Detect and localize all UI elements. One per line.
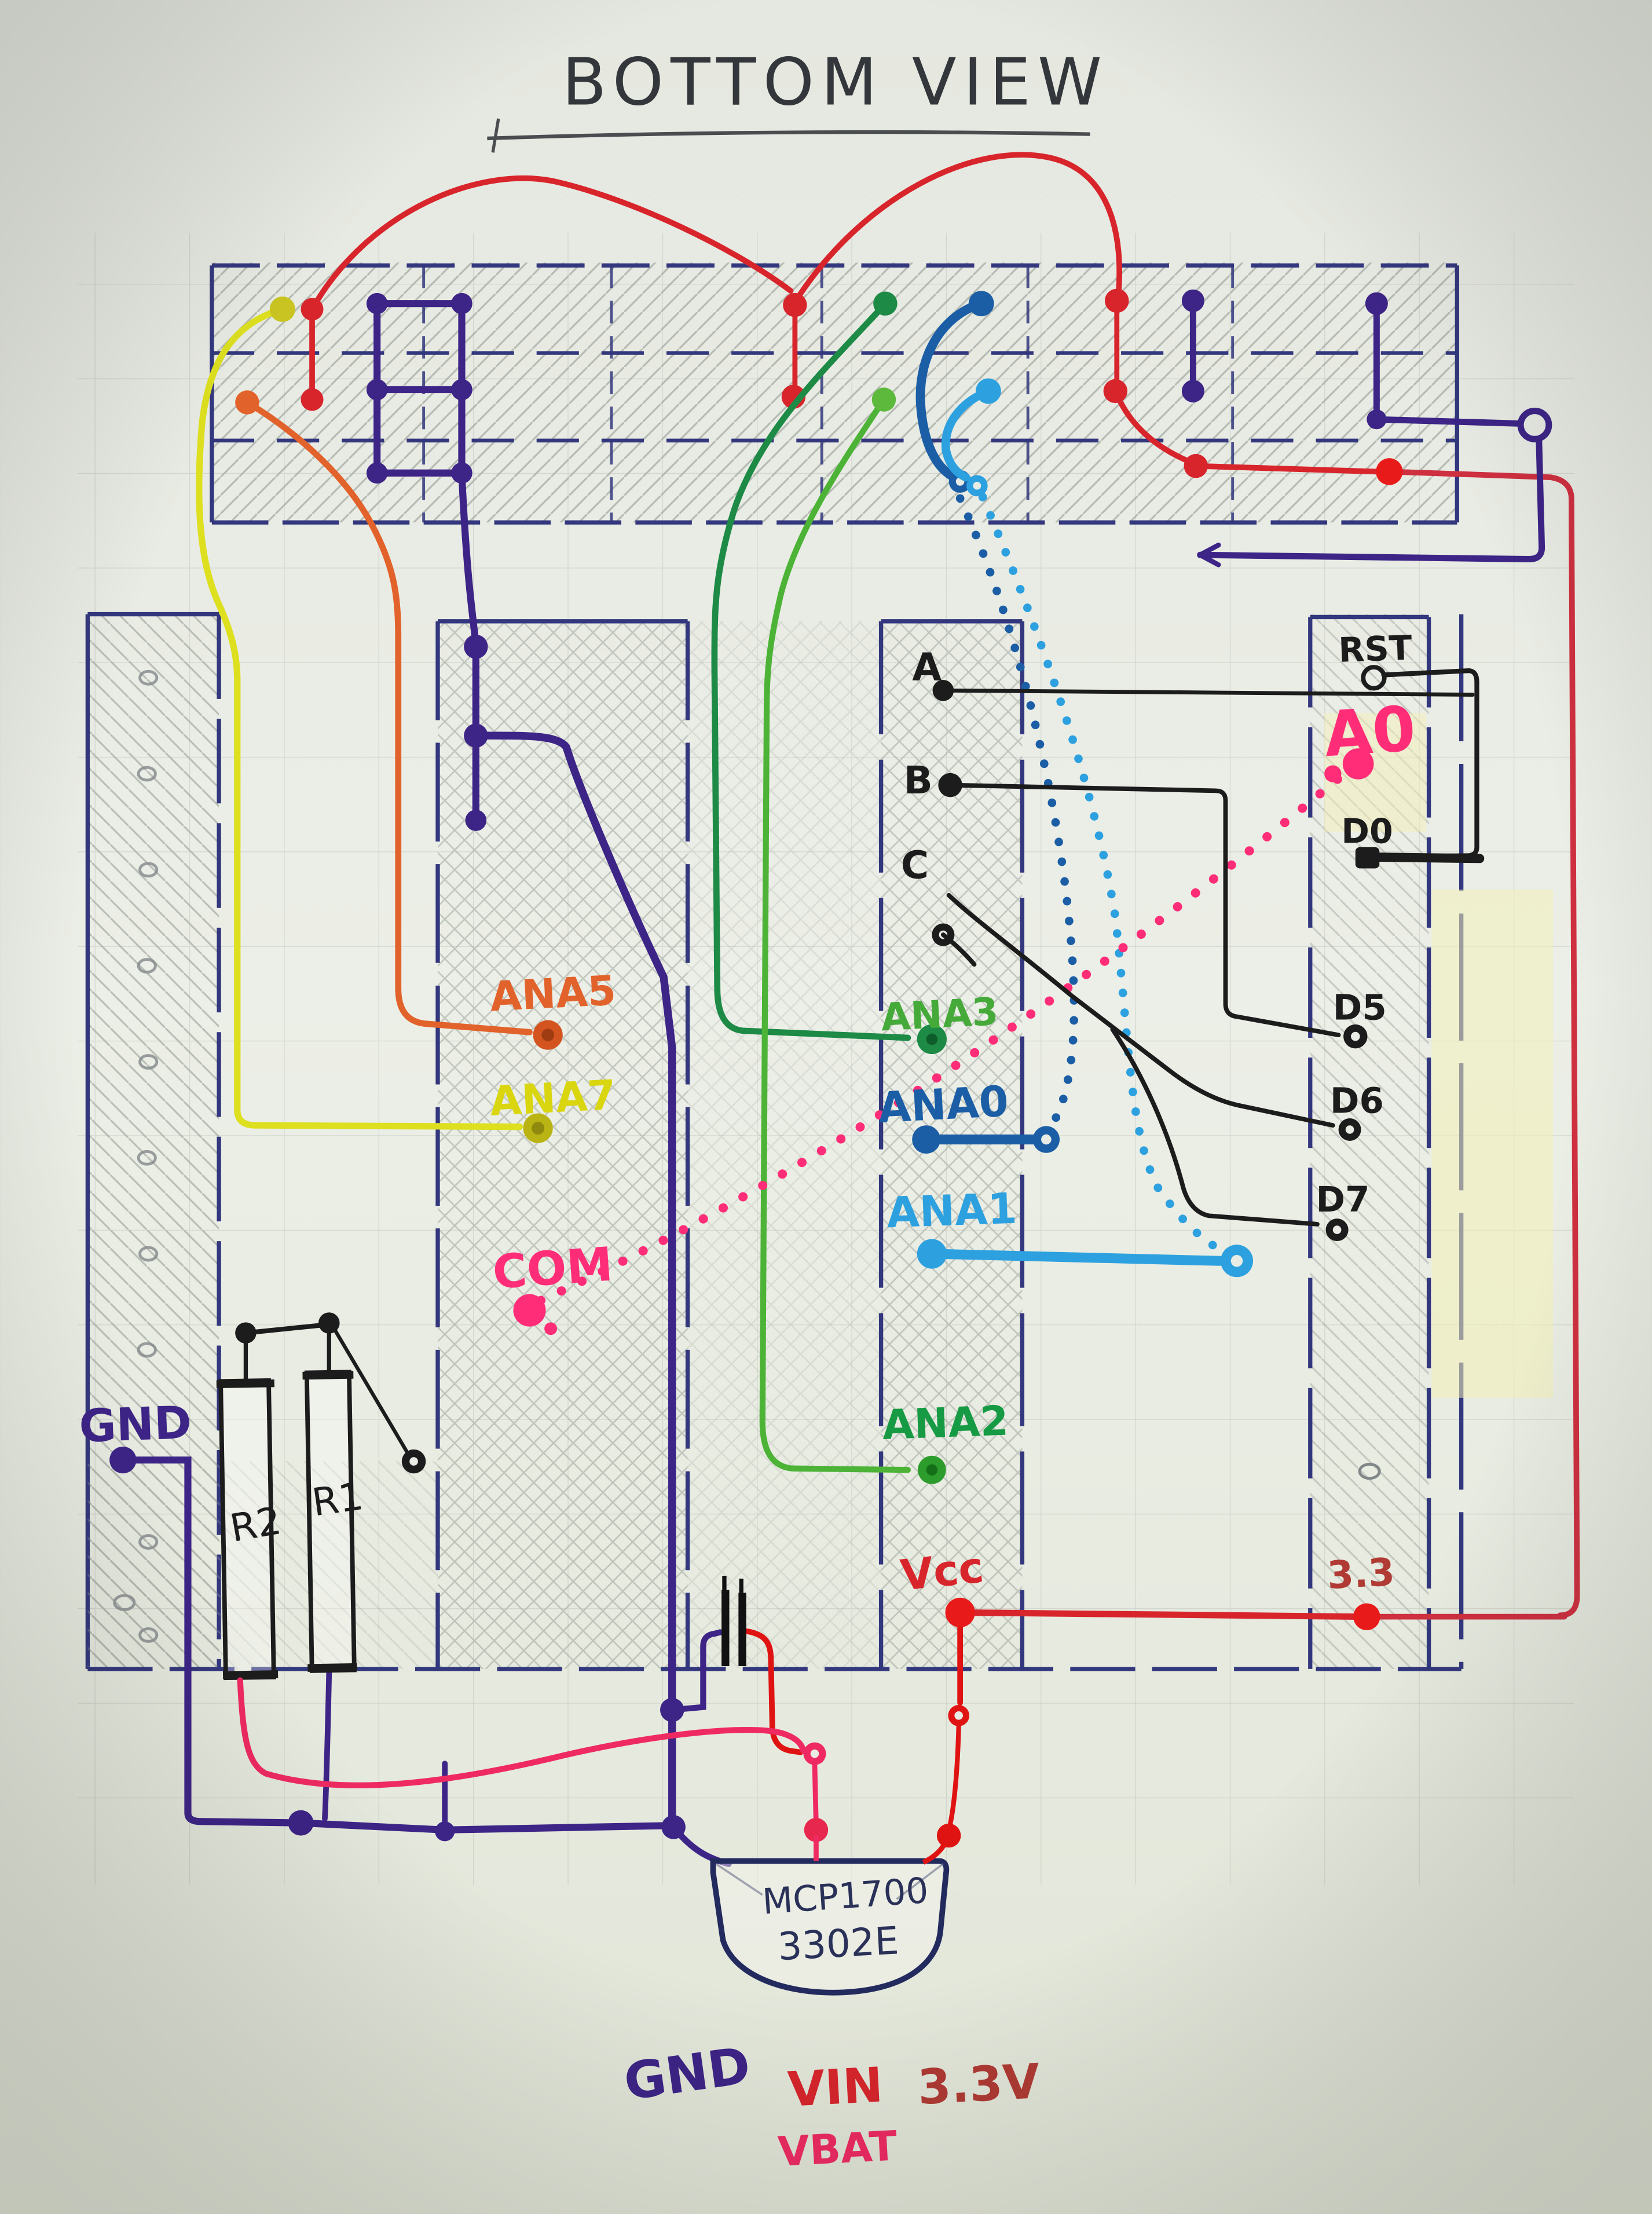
photo-vignette	[0, 0, 1652, 2214]
photo-of-hand-drawn-schematic: BOTTOM VIEW	[0, 0, 1652, 2214]
bottom-view-schematic: BOTTOM VIEW	[0, 0, 1652, 2214]
